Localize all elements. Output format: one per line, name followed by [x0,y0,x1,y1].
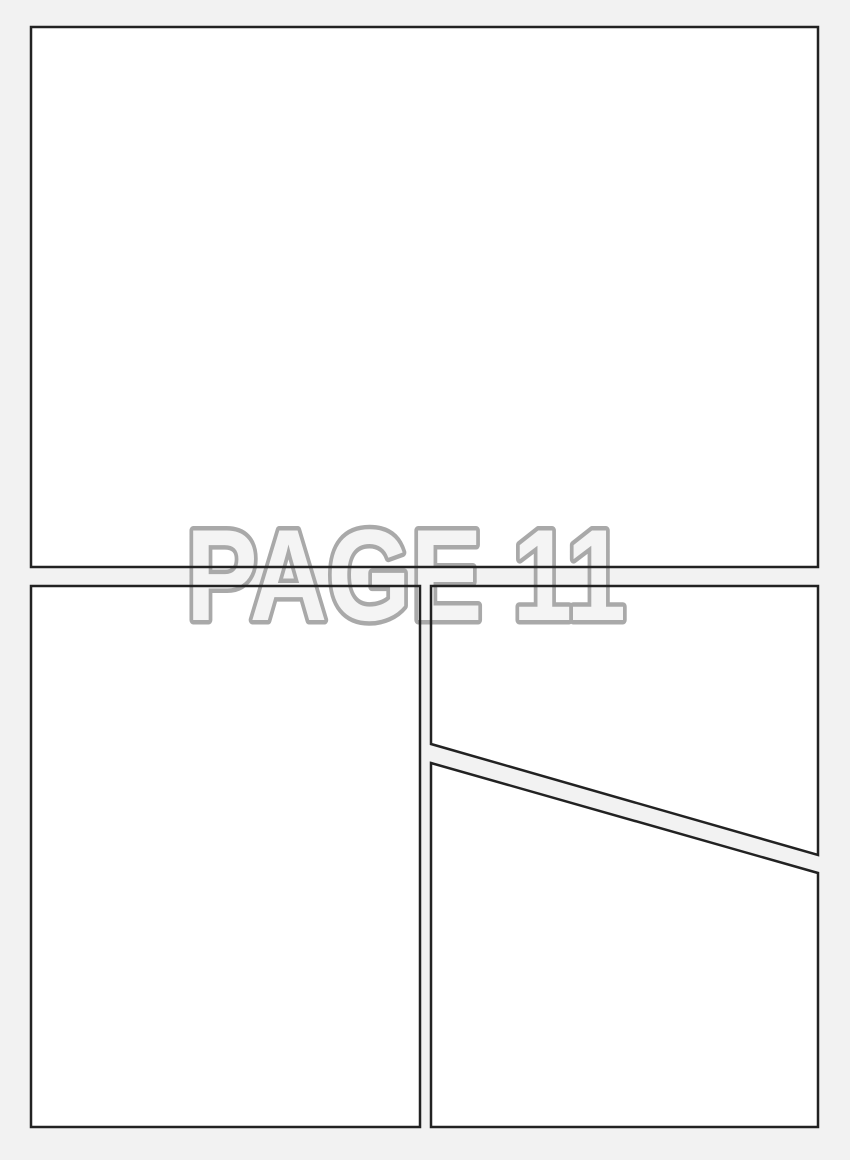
top-panel-fill [31,27,818,567]
comic-page-canvas: PAGE 11 [0,0,850,1160]
page-number-label: PAGE 11 [186,502,626,648]
bottom-left-panel-fill [31,586,420,1127]
comic-page-template: PAGE 11 [0,0,850,1160]
